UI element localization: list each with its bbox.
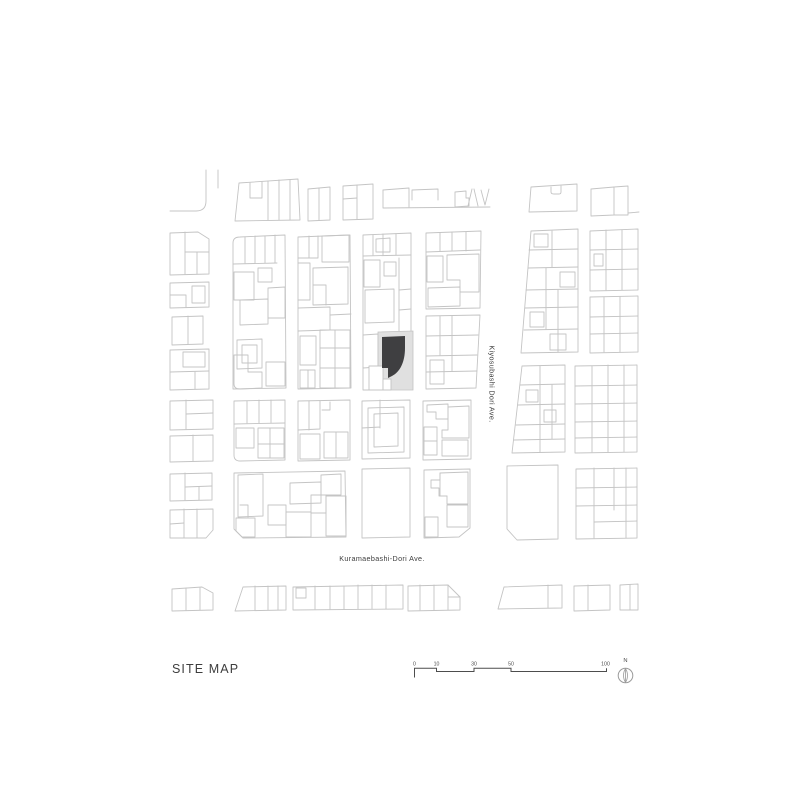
map-line [322,402,330,410]
map-line [426,371,477,372]
map-line [383,188,409,207]
map-line [481,189,489,205]
map-line [363,255,411,256]
map-line [614,186,628,215]
map-line [427,404,448,419]
north-indicator: N [618,658,633,683]
site-map-canvas: Kiyosubashi Dori Ave. Kuramaebashi-Dori … [0,0,800,800]
map-line [620,584,638,610]
map-line [521,229,578,353]
map-line [590,316,638,317]
map-line [514,439,565,440]
street-label-kuramaebashi: Kuramaebashi-Dori Ave. [339,554,424,563]
map-line [170,523,184,524]
map-line [258,268,272,282]
map-line [286,512,311,537]
map-line [575,385,637,386]
map-line [427,256,443,282]
map-line [170,435,213,462]
map-line [172,316,203,345]
map-line [594,254,603,266]
map-line [365,289,394,323]
map-line [518,404,565,405]
map-linework [170,170,639,611]
map-line [426,355,477,356]
map-line [234,355,262,389]
map-line [170,170,206,211]
scale-bar-number: 50 [508,662,514,668]
site-map-page: Kiyosubashi Dori Ave. Kuramaebashi-Dori … [0,0,800,800]
map-line [298,263,310,300]
map-line [524,329,578,330]
map-line [590,296,638,353]
map-line [186,413,213,414]
page-title: SITE MAP [172,662,239,676]
map-line [192,286,205,303]
map-line [362,400,410,459]
map-line [525,307,578,308]
map-line [528,267,578,268]
map-line [326,496,346,536]
map-line [516,424,565,425]
map-line [412,189,438,200]
map-line [440,472,468,504]
map-line [362,468,410,538]
site-highlight [369,331,413,390]
map-line [240,505,248,517]
scale-bar-line [415,668,607,677]
map-line [576,505,637,506]
map-line [234,423,285,424]
map-line [507,465,558,540]
scale-bar: 0103050100 [413,662,610,678]
map-line [399,309,411,310]
map-line [298,236,318,258]
map-line [425,517,438,537]
map-line [343,184,373,220]
map-line [233,235,286,389]
map-line [363,334,378,368]
map-line [576,487,637,488]
map-line [242,345,257,363]
map-line [575,403,637,404]
map-line [374,413,398,447]
north-label: N [623,658,627,664]
map-line [442,406,469,438]
map-line [240,299,268,325]
map-line [551,186,561,194]
map-line [343,198,357,199]
map-line [170,349,209,390]
map-line [448,585,460,610]
map-line [298,401,320,430]
map-line [185,486,212,487]
site-adjacent-parcel [383,379,391,390]
map-line [266,362,285,386]
map-line [290,482,321,504]
map-line [426,231,481,309]
map-line [576,468,637,539]
map-line [300,336,316,365]
map-line [322,235,349,262]
map-line [526,289,578,290]
map-line [238,474,263,517]
map-line [590,333,638,334]
scale-bar-number: 100 [601,662,610,668]
map-line [431,473,447,496]
map-line [529,184,577,212]
map-line [442,440,468,456]
map-line [575,437,637,438]
scale-bar-number: 10 [434,662,440,668]
map-line [364,260,380,287]
map-line [575,421,637,422]
map-line [313,285,326,305]
map-line [268,287,285,318]
map-line [590,269,638,270]
map-line [530,312,544,327]
map-line [234,272,254,300]
street-label-kiyosubashi: Kiyosubashi Dori Ave. [488,345,497,422]
map-line [447,254,479,292]
scale-bar-labels: 0103050100 [413,662,610,668]
map-line [293,585,403,610]
map-line [384,262,396,276]
map-line [300,434,320,459]
map-line [574,585,610,611]
map-line [520,384,565,385]
map-line [544,410,556,422]
map-line [170,295,186,307]
map-line [529,249,578,250]
map-line [236,518,255,537]
map-line [498,585,562,609]
map-line [590,249,638,250]
map-line [170,232,209,275]
map-line [234,471,346,538]
map-line [172,587,213,611]
map-line [183,352,205,367]
scale-bar-number: 30 [471,662,477,668]
map-line [300,370,315,388]
map-line [170,371,209,372]
map-line [534,234,548,247]
map-line [428,287,460,307]
map-line [296,588,306,598]
map-line [455,191,469,207]
map-line [590,229,638,291]
map-line [258,428,284,458]
map-line [383,190,490,208]
map-line [311,495,326,513]
map-line [591,187,614,216]
map-line [628,212,639,213]
map-line [426,315,480,389]
map-line [447,505,468,527]
site-adjacent-parcel [369,366,383,390]
map-line [330,314,351,315]
map-line [236,428,254,448]
map-line [237,339,262,369]
map-line [170,400,213,430]
map-line [298,307,330,331]
scale-bar-number: 0 [413,662,416,668]
map-line [250,182,262,198]
map-line [399,289,411,290]
map-line [594,521,637,522]
map-line [321,474,341,495]
map-line [575,365,637,453]
map-line [313,267,348,305]
map-line [560,272,575,287]
map-line [234,400,285,461]
map-line [426,250,480,252]
map-line [526,390,538,402]
map-line [468,189,478,206]
map-line [268,505,286,525]
